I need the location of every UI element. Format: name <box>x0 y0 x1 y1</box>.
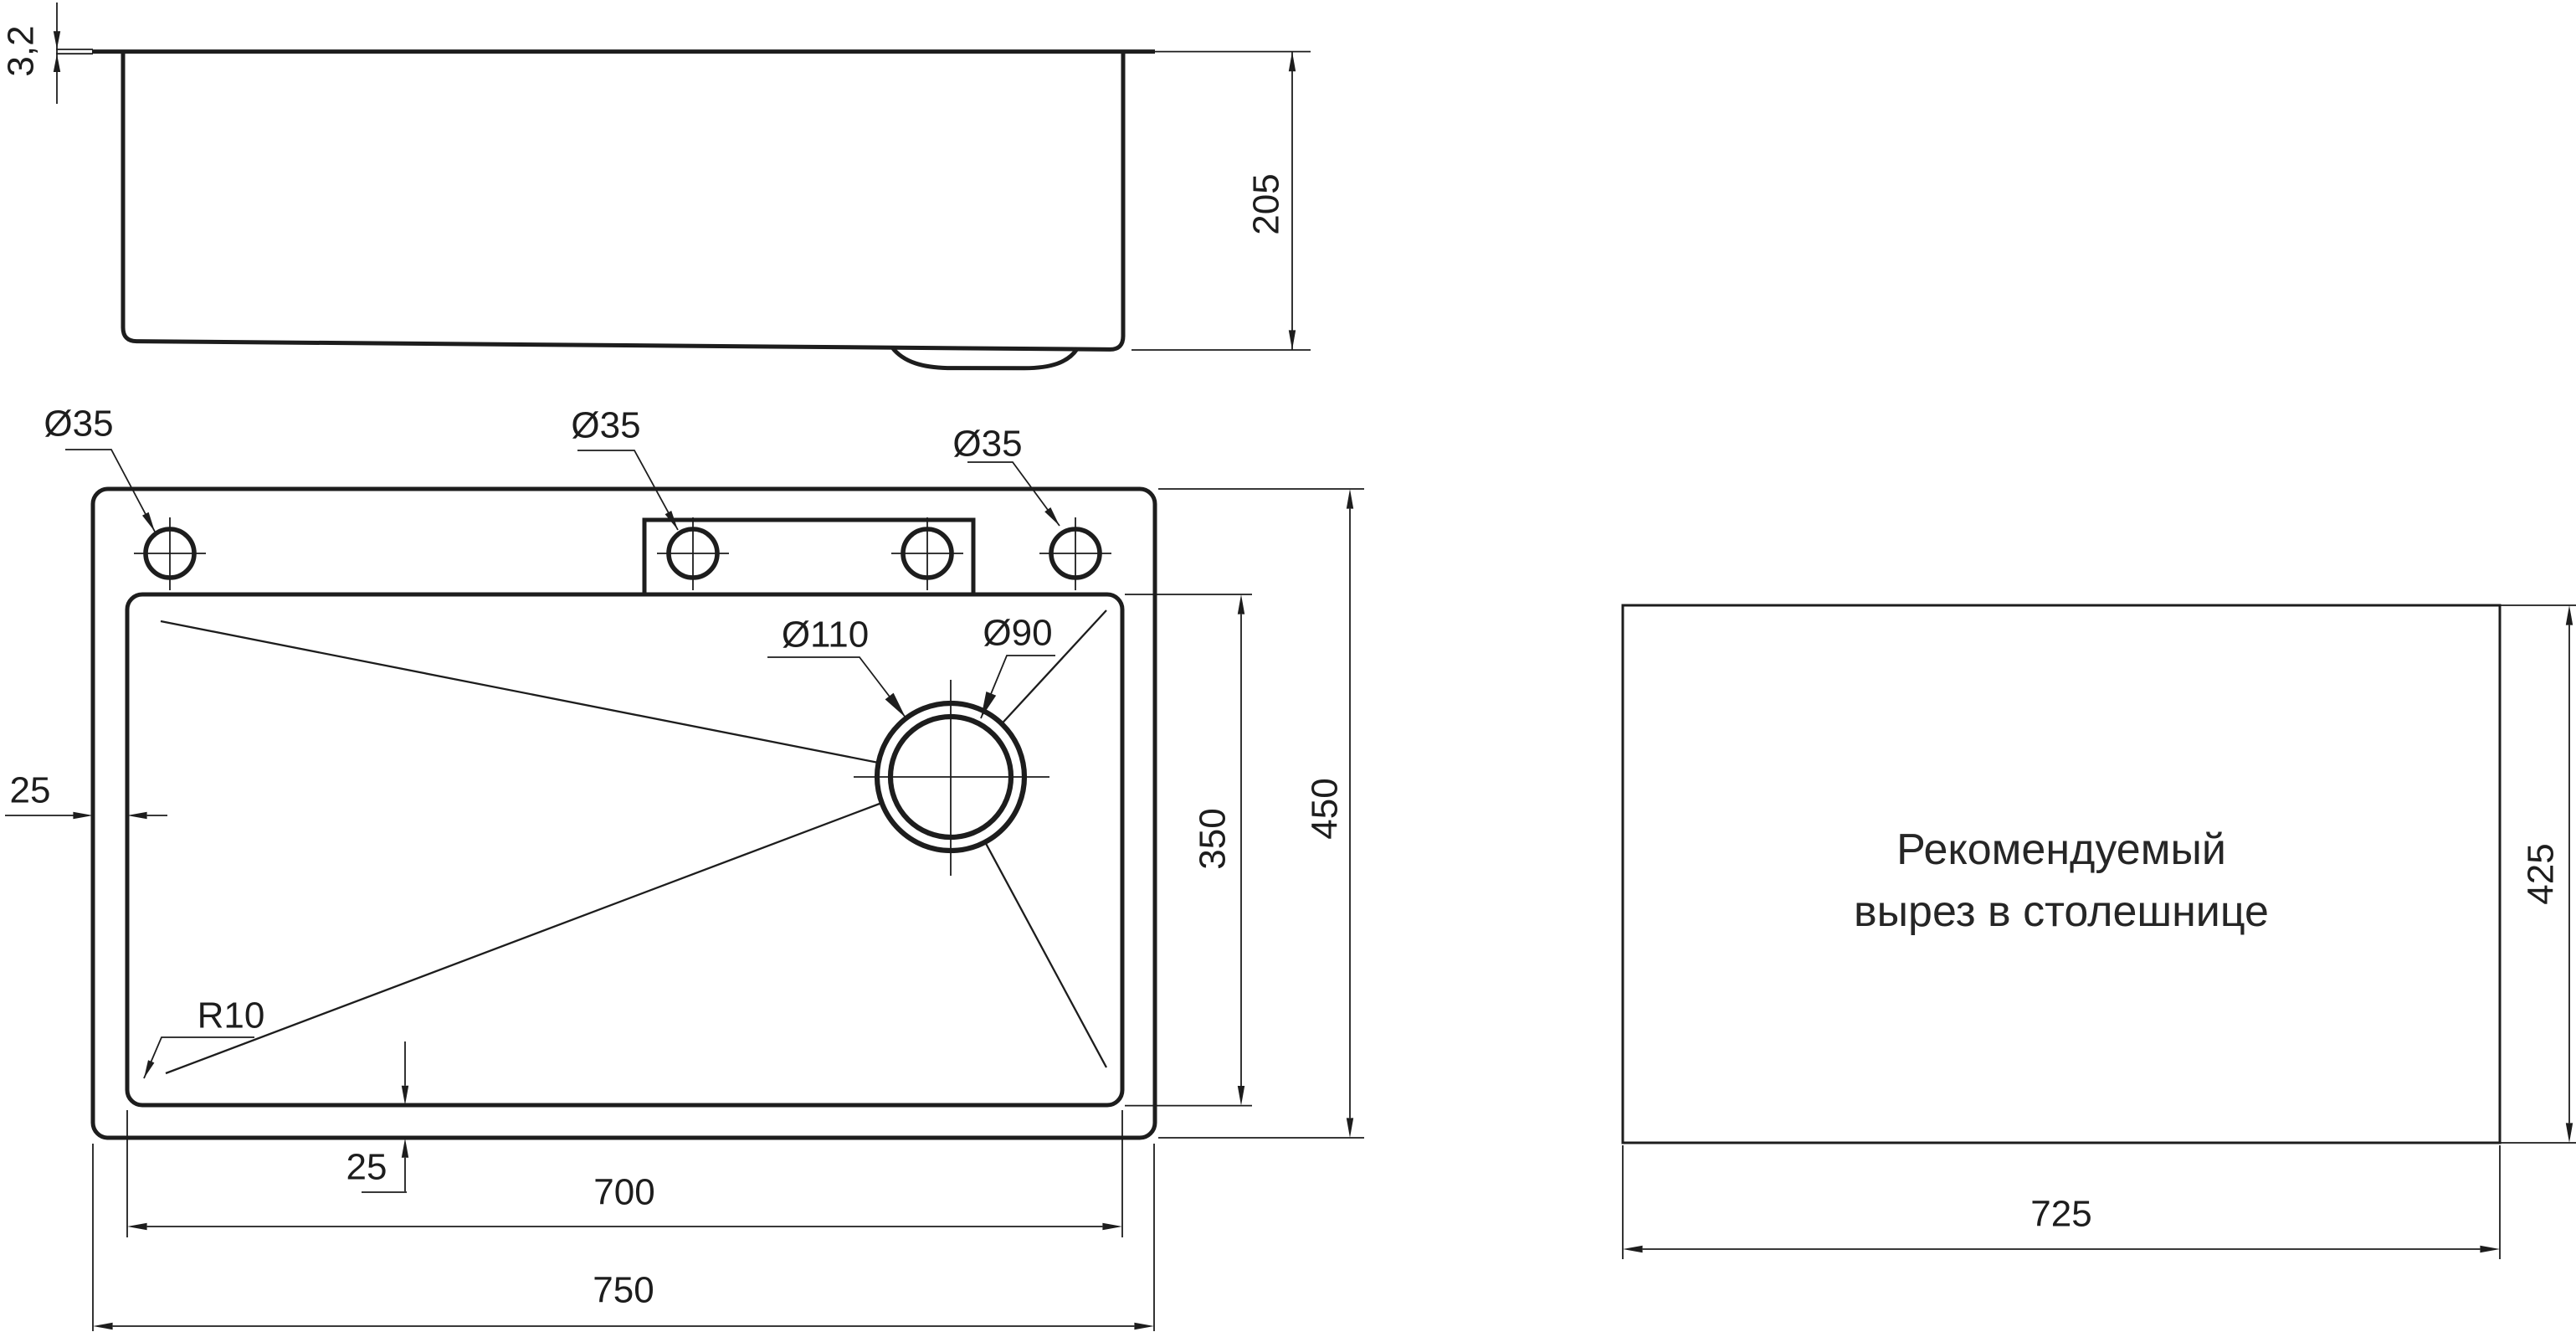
side-height-label: 205 <box>1245 173 1286 234</box>
arrowhead-up-icon <box>1347 489 1353 509</box>
arrowhead-up-icon <box>2566 605 2573 625</box>
arrowhead-down-icon <box>1238 1086 1244 1106</box>
drain <box>854 680 1049 876</box>
leader-arrow-icon <box>1044 507 1060 526</box>
leader-arrow-icon <box>144 1060 154 1078</box>
cutout-height-label: 425 <box>2520 843 2561 904</box>
arrowhead-up-icon <box>54 54 60 72</box>
arrowhead-down-icon <box>2566 1123 2573 1143</box>
faucet-hole-4 <box>1039 517 1111 590</box>
arrowhead-right-icon <box>2480 1246 2500 1252</box>
arrowhead-up-icon <box>1289 52 1296 72</box>
slope-line-top-left <box>161 621 879 763</box>
arrowhead-left-icon <box>127 1223 147 1230</box>
arrowhead-down-icon <box>1289 330 1296 350</box>
faucet-hole-2 <box>657 517 729 590</box>
sink-technical-drawing: 3,2 205 <box>0 0 2576 1332</box>
drain-outer-label: Ø110 <box>782 614 869 655</box>
overall-depth-label: 450 <box>1304 778 1345 839</box>
side-view: 3,2 205 <box>0 3 1311 368</box>
slope-line-bottom-left <box>166 803 882 1073</box>
overall-width-label: 750 <box>593 1269 654 1310</box>
side-sink-body <box>123 54 1123 349</box>
drain-inner-leader <box>981 656 1055 718</box>
arrowhead-up-icon <box>1238 594 1244 615</box>
arrowhead-down-icon <box>54 31 60 49</box>
corner-radius-label: R10 <box>198 995 265 1036</box>
faucet-hole-1 <box>134 517 206 590</box>
cutout-note-line2: вырез в столешнице <box>1854 887 2269 936</box>
cutout-note-line1: Рекомендуемый <box>1896 825 2226 874</box>
drain-inner-label: Ø90 <box>983 612 1052 653</box>
leader-arrow-icon <box>885 693 906 717</box>
arrowhead-left-icon <box>1623 1246 1643 1252</box>
cutout-view: Рекомендуемый вырез в столешнице 425 725 <box>1623 605 2576 1259</box>
corner-radius-leader <box>144 1037 254 1078</box>
plan-view: Ø35 Ø35 Ø35 Ø110 Ø90 25 R10 <box>5 403 1364 1331</box>
arrowhead-down-icon <box>402 1086 408 1105</box>
bowl-depth-label: 350 <box>1192 808 1233 869</box>
hole3-leader <box>967 462 1060 526</box>
left-inset-label: 25 <box>10 769 51 810</box>
leader-arrow-icon <box>142 512 155 532</box>
bowl-width-label: 700 <box>593 1171 654 1212</box>
rim-thickness-label: 3,2 <box>0 25 41 76</box>
arrowhead-right-icon <box>1134 1323 1154 1329</box>
cutout-width-label: 725 <box>2030 1193 2091 1234</box>
hole2-diameter-label: Ø35 <box>571 404 640 445</box>
arrowhead-left-icon <box>127 812 147 819</box>
hole1-diameter-label: Ø35 <box>44 403 113 444</box>
hole3-diameter-label: Ø35 <box>952 423 1022 464</box>
drawing-page: 3,2 205 <box>0 0 2576 1332</box>
arrowhead-right-icon <box>73 812 93 819</box>
slope-line-bottom-right <box>985 842 1106 1067</box>
arrowhead-right-icon <box>1102 1223 1122 1230</box>
arrowhead-down-icon <box>1347 1118 1353 1138</box>
bottom-inset-label: 25 <box>346 1146 387 1187</box>
faucet-hole-3 <box>891 517 963 590</box>
arrowhead-up-icon <box>402 1139 408 1158</box>
drain-outer-leader <box>767 657 906 717</box>
arrowhead-left-icon <box>93 1323 113 1329</box>
